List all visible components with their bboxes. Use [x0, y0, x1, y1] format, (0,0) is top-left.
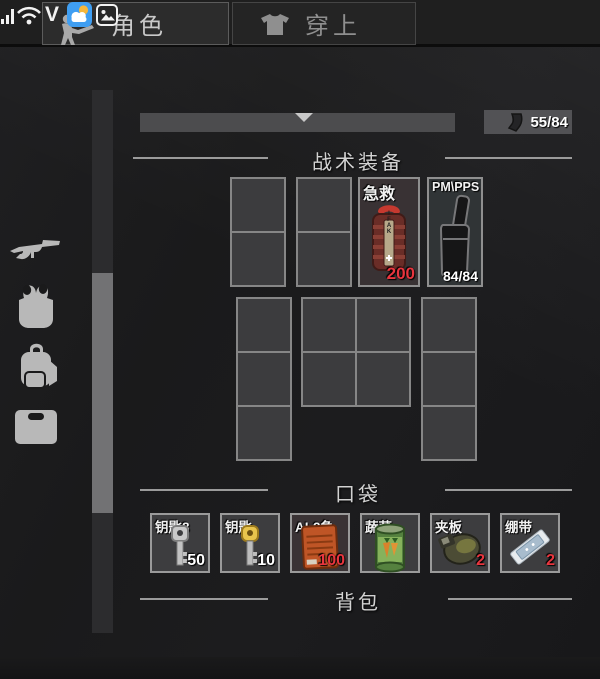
tshirt-icon	[261, 14, 289, 36]
empty-slot[interactable]	[298, 233, 350, 285]
tactical-grid-1x3-left	[236, 297, 292, 461]
ifak-icon-text: IFAK	[386, 211, 392, 235]
equipment-collapse-bar[interactable]	[140, 113, 455, 132]
item-count: 2	[546, 552, 555, 570]
tab-character-label: 角色	[111, 6, 167, 41]
vegetable-can-icon	[372, 521, 408, 573]
empty-slot[interactable]	[232, 179, 284, 231]
divider-line	[445, 157, 572, 159]
divider-line	[445, 489, 572, 491]
empty-slot[interactable]	[232, 233, 284, 285]
section-title-backpack: 背包	[240, 586, 476, 615]
collapse-arrow-icon	[295, 113, 313, 122]
empty-slot[interactable]	[238, 353, 290, 405]
divider-line	[140, 598, 268, 600]
empty-slot[interactable]	[357, 353, 409, 405]
empty-slot[interactable]	[423, 299, 475, 351]
empty-slot[interactable]	[298, 179, 350, 231]
rifle-icon[interactable]	[9, 236, 61, 266]
backpack-icon[interactable]	[16, 340, 60, 400]
empty-slot[interactable]	[303, 353, 355, 405]
tactical-grid-2x2	[301, 297, 411, 407]
tab-wear[interactable]: 穿上	[232, 2, 416, 45]
section-title-tactical: 战术装备	[240, 146, 476, 175]
scrollbar-thumb[interactable]	[92, 273, 113, 513]
item-key-8[interactable]: 钥匙8 50	[150, 513, 210, 573]
empty-slot[interactable]	[423, 407, 475, 459]
scrollbar-track[interactable]	[92, 90, 113, 633]
weather-app-icon	[67, 2, 92, 27]
section-title-pockets: 口袋	[240, 478, 476, 507]
photo-app-icon	[96, 4, 118, 26]
bottom-shade	[0, 657, 600, 679]
item-count: 10	[257, 552, 275, 570]
item-count: 200	[387, 264, 415, 284]
tactical-grid-1x2-b	[296, 177, 352, 287]
item-count: 84/84	[443, 268, 478, 284]
item-splint[interactable]: 夹板 2	[430, 513, 490, 573]
tactical-grid-1x2-a	[230, 177, 286, 287]
item-key-gold[interactable]: 钥匙 10	[220, 513, 280, 573]
character-inventory-screen: 角色 穿上 V	[0, 0, 600, 679]
item-vegetable-can[interactable]: 蔬菜	[360, 513, 420, 573]
empty-slot[interactable]	[238, 407, 290, 459]
tactical-grid-1x3-right	[421, 297, 477, 461]
empty-slot[interactable]	[423, 353, 475, 405]
divider-line	[133, 157, 268, 159]
divider-line	[140, 489, 268, 491]
magazine-icon	[506, 112, 526, 132]
weapon-magazine-counter[interactable]: 55/84	[484, 110, 572, 134]
empty-slot[interactable]	[357, 299, 409, 351]
case-icon[interactable]	[13, 404, 59, 446]
check-indicator: V	[45, 3, 59, 27]
item-pm-pps-magazine[interactable]: PM\PPS 84/84	[427, 177, 483, 287]
item-first-aid[interactable]: 急救 IFAK 200	[358, 177, 420, 287]
item-count: 2	[476, 552, 485, 570]
signal-bars-icon	[1, 7, 15, 25]
item-ai2-medkit[interactable]: AI-2急 100	[290, 513, 350, 573]
divider-line	[448, 598, 572, 600]
item-count: 100	[318, 552, 345, 570]
tab-wear-label: 穿上	[305, 6, 361, 41]
item-bandage[interactable]: 绷带 2	[500, 513, 560, 573]
wifi-icon	[16, 5, 42, 27]
item-count: 50	[187, 552, 205, 570]
empty-slot[interactable]	[238, 299, 290, 351]
empty-slot[interactable]	[303, 299, 355, 351]
tactical-rig-icon[interactable]	[13, 279, 59, 333]
magazine-count-label: 55/84	[530, 114, 568, 131]
